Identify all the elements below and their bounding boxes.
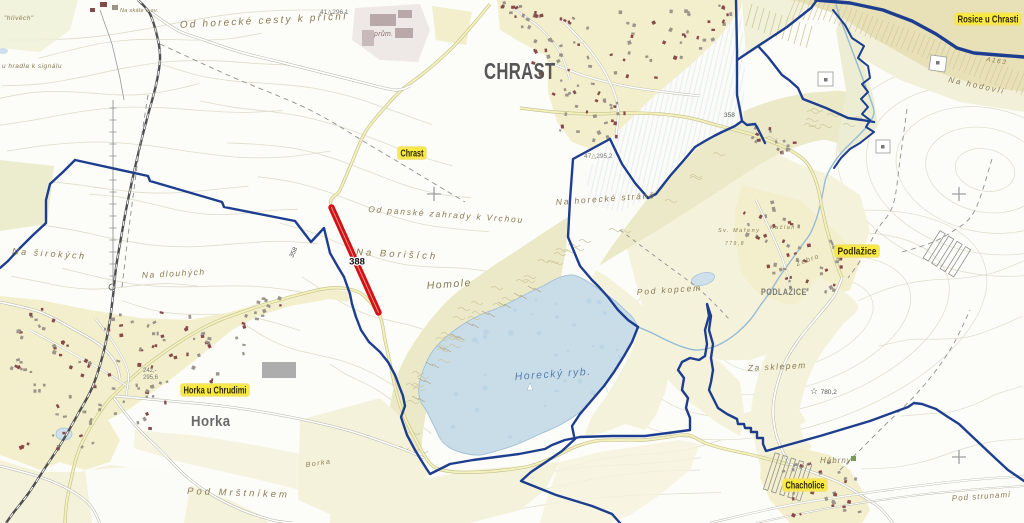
svg-text:PODLAŽICE: PODLAŽICE xyxy=(761,285,807,297)
svg-text:358: 358 xyxy=(724,112,735,119)
svg-text:779,8: 779,8 xyxy=(725,241,745,247)
svg-text:Horka u Chrudimi: Horka u Chrudimi xyxy=(184,386,247,397)
svg-text:47△295,2: 47△295,2 xyxy=(584,153,613,160)
svg-text:Kačlaň: Kačlaň xyxy=(770,225,796,231)
svg-text:Horka: Horka xyxy=(191,412,231,429)
svg-text:Na skále u sv.: Na skále u sv. xyxy=(120,8,158,14)
svg-text:"hlívěch": "hlívěch" xyxy=(4,15,34,22)
svg-text:prům.: prům. xyxy=(373,30,393,38)
svg-text:242,-295,6: 242,-295,6 xyxy=(143,368,159,381)
svg-text:Hábrny: Hábrny xyxy=(820,456,852,465)
svg-text:Sv. Mařeny: Sv. Mařeny xyxy=(718,228,760,234)
svg-text:Podlažice: Podlažice xyxy=(838,247,877,258)
svg-text:Chrast: Chrast xyxy=(401,149,424,160)
svg-text:CHRAST: CHRAST xyxy=(484,59,556,84)
svg-text:u hradla k signálu: u hradla k signálu xyxy=(2,63,62,70)
svg-text:Chacholice: Chacholice xyxy=(786,481,825,492)
svg-text:Rosice u Chrasti: Rosice u Chrasti xyxy=(958,15,1019,26)
